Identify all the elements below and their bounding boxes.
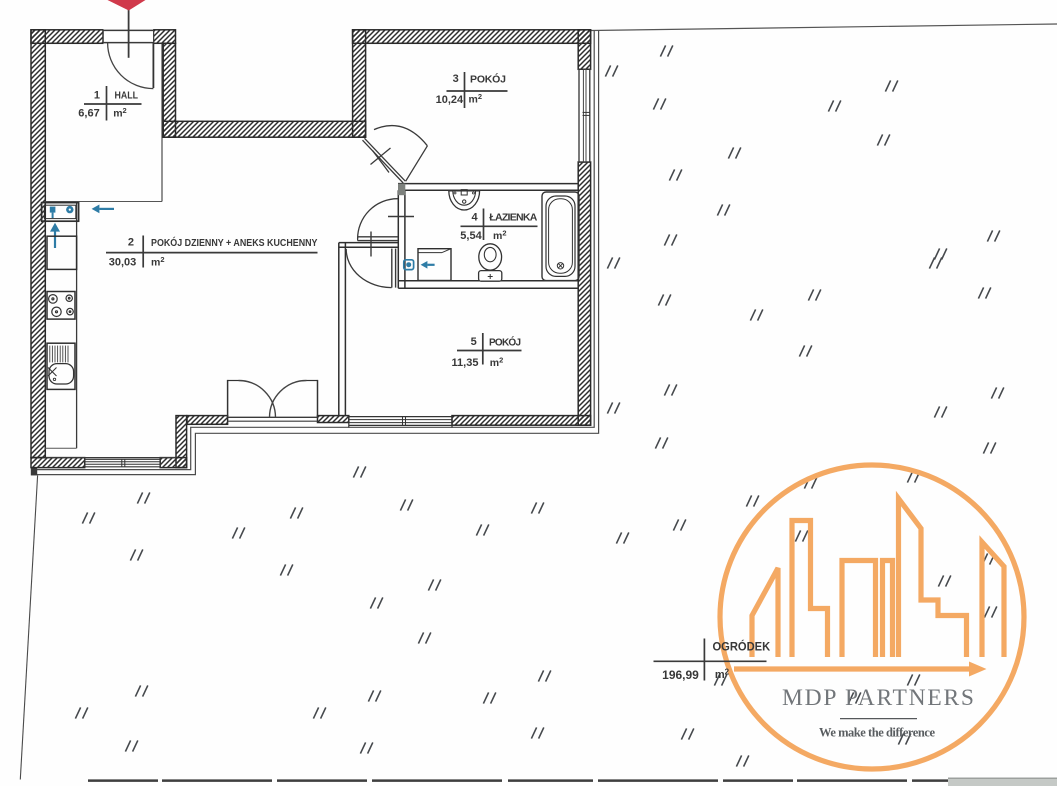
svg-text:6,67: 6,67: [78, 108, 99, 120]
svg-text:HALL: HALL: [115, 89, 139, 101]
svg-text:MDP PARTNERS: MDP PARTNERS: [782, 685, 974, 711]
svg-text:5,54: 5,54: [460, 230, 482, 242]
svg-text:1: 1: [94, 89, 100, 101]
svg-text:3: 3: [453, 73, 459, 85]
svg-text:30,03: 30,03: [109, 257, 137, 269]
svg-text:4: 4: [471, 211, 478, 223]
svg-text:196,99: 196,99: [662, 668, 699, 682]
svg-text:POKÓJ DZIENNY + ANEKS KUCHENNY: POKÓJ DZIENNY + ANEKS KUCHENNY: [151, 236, 318, 249]
svg-text:11,35: 11,35: [452, 357, 479, 369]
svg-text:We make the difference: We make the difference: [819, 726, 935, 740]
svg-text:5: 5: [471, 336, 477, 348]
svg-text:OGRÓDEK: OGRÓDEK: [713, 641, 771, 654]
svg-text:10,24: 10,24: [436, 94, 464, 106]
svg-text:2: 2: [128, 237, 134, 249]
svg-text:POKÓJ: POKÓJ: [470, 72, 506, 85]
svg-text:ŁAZIENKA: ŁAZIENKA: [489, 212, 537, 224]
svg-text:POKÓJ: POKÓJ: [489, 335, 521, 348]
